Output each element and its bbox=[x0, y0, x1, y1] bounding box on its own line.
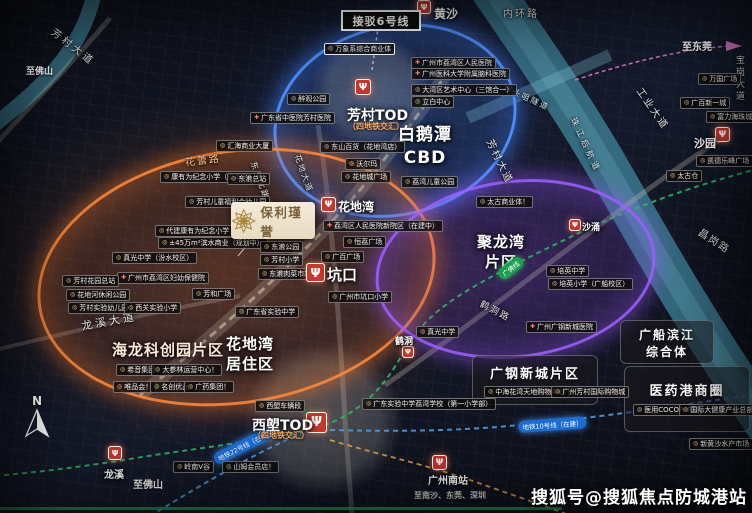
metro-icon: Ψ bbox=[306, 263, 325, 282]
station-longxi: 龙溪 bbox=[104, 466, 124, 481]
poi-dot-icon: ◎ bbox=[550, 268, 555, 275]
poi-dot-icon: ◎ bbox=[162, 240, 167, 247]
hospital-cross-icon: ✚ bbox=[415, 71, 420, 78]
poi-dot-icon: ◎ bbox=[325, 254, 330, 261]
poi-text: 汇海商业大厦 bbox=[227, 142, 269, 150]
metro-icon: Ψ bbox=[402, 346, 414, 358]
map-poi: ◎大湾区艺术中心（三馆合一） bbox=[411, 84, 517, 96]
metro-icon: Ψ bbox=[432, 455, 447, 470]
poi-text: 西关实验小学 bbox=[135, 304, 177, 312]
poi-text: 立白中心 bbox=[422, 98, 450, 106]
yiyaogang-zone-box: 医药港商圈 bbox=[624, 366, 750, 432]
project-logo-card: 保利瑾誉 bbox=[231, 202, 315, 239]
poi-dot-icon: ◎ bbox=[164, 174, 169, 181]
poi-text: 培英中学 bbox=[557, 267, 585, 275]
poi-text: 广州市荔湾区妇幼保健院 bbox=[128, 274, 205, 282]
poi-dot-icon: ◎ bbox=[349, 161, 354, 168]
map-poi: ◎西关实验小学 bbox=[124, 302, 181, 314]
station-huadiwan: 花地湾 bbox=[338, 198, 374, 215]
poi-text: 东漖总站 bbox=[238, 175, 266, 183]
poi-text: 东漖公园 bbox=[271, 243, 299, 251]
poi-dot-icon: ◎ bbox=[117, 384, 122, 391]
station-xilang-sub: （四地铁交汇） bbox=[253, 430, 309, 441]
map-poi: ◎新黄沙水产市场 bbox=[689, 438, 752, 450]
poi-dot-icon: ◎ bbox=[264, 244, 269, 251]
map-poi: ✚广州市荔湾区妇幼保健院 bbox=[117, 272, 209, 284]
poi-text: 广州广钢新城医院 bbox=[537, 323, 593, 331]
poi-dot-icon: ◎ bbox=[291, 96, 296, 103]
hospital-cross-icon: ✚ bbox=[327, 223, 332, 230]
poi-text: ±45万m²滨水商业（规划中） bbox=[169, 239, 263, 247]
poi-text: 广州芳村国际购物城 bbox=[562, 388, 625, 396]
station-huangsha: 黄沙 bbox=[434, 5, 458, 22]
poi-dot-icon: ◎ bbox=[189, 199, 194, 206]
map-poi: ◎富力海珠城 bbox=[706, 111, 752, 123]
line6-label: 接驳6号线 bbox=[353, 13, 410, 29]
station-fangcun-sub: （四地铁交汇） bbox=[348, 121, 404, 132]
map-poi: ◎山姆会员店！ bbox=[222, 461, 279, 473]
poi-text: 唯品会！ bbox=[124, 383, 152, 391]
poi-dot-icon: ◎ bbox=[415, 99, 420, 106]
map-poi: ◎芳村小学 bbox=[260, 254, 303, 266]
map-poi: ◎太古仓 bbox=[666, 170, 702, 182]
to-dongguan-arrow bbox=[726, 41, 742, 51]
poi-dot-icon: ◎ bbox=[120, 367, 125, 374]
poly-flower-logo-icon bbox=[231, 208, 256, 234]
map-poi: ◎芳和广场 bbox=[192, 288, 235, 300]
map-poi: ◎真光中学（汾水校区） bbox=[112, 252, 197, 264]
poi-dot-icon: ◎ bbox=[220, 143, 225, 150]
map-poi: ◎恒荔广场 bbox=[343, 236, 386, 248]
poi-dot-icon: ◎ bbox=[684, 100, 689, 107]
poi-dot-icon: ◎ bbox=[328, 46, 333, 53]
poi-text: 芳和广场 bbox=[203, 290, 231, 298]
map-poi: ✚广州医科大学附属脑科医院 bbox=[411, 68, 510, 80]
poi-text: 恒荔广场 bbox=[354, 238, 382, 246]
metro-icon: Ψ bbox=[715, 127, 730, 142]
zone-hailong: 海龙科创园片区 bbox=[112, 340, 224, 360]
map-poi: ◎立白中心 bbox=[411, 96, 454, 108]
poi-text: 花地城广场 bbox=[352, 173, 387, 181]
direction-nansha: 至南沙、东莞、深圳 bbox=[414, 490, 486, 501]
compass-n-label: N bbox=[24, 394, 50, 408]
map-poi: ◎西塱车辆段 bbox=[255, 400, 305, 412]
poi-dot-icon: ◎ bbox=[670, 173, 675, 180]
poi-dot-icon: ◎ bbox=[159, 228, 164, 235]
poi-dot-icon: ◎ bbox=[188, 384, 193, 391]
poi-text: 东漖肉菜市场 bbox=[269, 270, 311, 278]
poi-text: 广百新一城 bbox=[691, 99, 726, 107]
poi-dot-icon: ◎ bbox=[347, 239, 352, 246]
poi-text: 太古商业体！ bbox=[487, 198, 529, 206]
road-label: 内环路 bbox=[503, 5, 539, 20]
poi-text: 广百广场 bbox=[332, 253, 360, 261]
zone-baietan: 白鹅潭CBD bbox=[398, 124, 452, 170]
map-poi: ◎醉观公园 bbox=[287, 93, 330, 105]
poi-dot-icon: ◎ bbox=[420, 329, 425, 336]
map-poi: ✚荔湾区人民医院新院区（在建中） bbox=[323, 220, 443, 232]
map-poi: ✚广东省中医院芳村医院 bbox=[250, 112, 335, 124]
metro-icon: Ψ bbox=[355, 79, 371, 95]
poi-text: 广州市荔湾区人民医院 bbox=[422, 59, 492, 67]
map-poi: ✚广州广钢新城医院 bbox=[526, 321, 597, 333]
poi-text: 大湾区艺术中心（三馆合一） bbox=[422, 86, 513, 94]
line6-connection-badge: 接驳6号线 bbox=[341, 10, 421, 31]
map-poi: ◎芳村实验幼儿园 bbox=[68, 302, 132, 314]
poi-dot-icon: ◎ bbox=[154, 384, 159, 391]
poi-dot-icon: ◎ bbox=[116, 255, 121, 262]
poi-dot-icon: ◎ bbox=[66, 278, 71, 285]
zone-title: 广钢新城片区 bbox=[473, 356, 597, 382]
map-poi: ◎荔湾儿童公园 bbox=[401, 176, 458, 188]
poi-dot-icon: ◎ bbox=[637, 407, 642, 414]
poi-dot-icon: ◎ bbox=[332, 294, 337, 301]
map-poi: ◎东山百货（花地湾店） bbox=[320, 141, 405, 153]
map-poi: ◎凯德乐峰广场 bbox=[696, 155, 752, 167]
station-shayong: 沙涌 bbox=[582, 220, 600, 233]
map-poi: ◎花地河休闲公园 bbox=[66, 289, 130, 301]
poi-text: 山姆会员店！ bbox=[233, 463, 275, 471]
map-poi: ◎东漖总站 bbox=[227, 173, 270, 185]
map-poi: ◎岭南V谷 bbox=[173, 461, 214, 473]
poi-text: 芳村花园总站 bbox=[73, 277, 115, 285]
map-poi: ◎广百广场 bbox=[321, 251, 364, 263]
poi-text: 富力海珠城 bbox=[717, 113, 752, 121]
poi-text: 岭南V谷 bbox=[184, 463, 210, 471]
poi-text: 荔湾区人民医院新院区（在建中） bbox=[334, 222, 439, 230]
map-poi: ◎广东省实验中学 bbox=[235, 306, 299, 318]
poi-dot-icon: ◎ bbox=[70, 292, 75, 299]
poi-dot-icon: ◎ bbox=[239, 309, 244, 316]
poi-text: 真光中学 bbox=[427, 328, 455, 336]
poi-dot-icon: ◎ bbox=[683, 407, 688, 414]
station-shayuan: 沙园 bbox=[694, 135, 716, 151]
map-poi: ◎国际大健康产业总部！ bbox=[679, 404, 752, 416]
poi-text: 培英小学（广船校区） bbox=[559, 280, 629, 288]
station-hedong: 鹤洞 bbox=[395, 334, 413, 347]
poi-text: 广东省中医院芳村医院 bbox=[261, 114, 331, 122]
poi-text: 花地河休闲公园 bbox=[77, 291, 126, 299]
compass-north: N bbox=[24, 394, 50, 442]
map-poi: ◎万象系综合商业体 bbox=[324, 43, 395, 55]
map-poi: ◎真光中学 bbox=[416, 326, 459, 338]
station-kengkou: 坑口 bbox=[327, 264, 357, 285]
poi-dot-icon: ◎ bbox=[488, 389, 493, 396]
zone-title: 医药港商圈 bbox=[625, 367, 749, 399]
zone-title: 综合体 bbox=[621, 343, 713, 360]
map-poi: ◎芳村花园总站 bbox=[62, 275, 119, 287]
poi-dot-icon: ◎ bbox=[264, 257, 269, 264]
poi-dot-icon: ◎ bbox=[555, 389, 560, 396]
poi-dot-icon: ◎ bbox=[480, 199, 485, 206]
hospital-cross-icon: ✚ bbox=[121, 275, 126, 282]
poi-dot-icon: ◎ bbox=[702, 76, 707, 83]
poi-dot-icon: ◎ bbox=[366, 401, 371, 408]
poi-text: 真光中学（汾水校区） bbox=[123, 254, 193, 262]
north-arrow-icon bbox=[24, 408, 50, 438]
poi-text: 新黄沙水产市场 bbox=[700, 440, 749, 448]
direction-dongguan: 至东莞 bbox=[682, 38, 712, 53]
bottom-green-road bbox=[0, 507, 562, 510]
poi-text: 太古仓 bbox=[677, 172, 698, 180]
poi-dot-icon: ◎ bbox=[552, 281, 557, 288]
poi-text: 国际大健康产业总部！ bbox=[690, 406, 752, 414]
poi-dot-icon: ◎ bbox=[262, 271, 267, 278]
map-poi: ◎广百新一城 bbox=[680, 97, 730, 109]
poi-dot-icon: ◎ bbox=[700, 158, 705, 165]
poi-dot-icon: ◎ bbox=[177, 464, 182, 471]
poi-text: 荔湾儿童公园 bbox=[412, 178, 454, 186]
poi-dot-icon: ◎ bbox=[155, 367, 160, 374]
map-poi: ◎广州市坑口小学 bbox=[328, 291, 392, 303]
map-canvas: 内环路 芳村大道 芳村大道 花蕾路 东漖北路 花地大道 龙溪大道 工业大道 宝岗… bbox=[0, 0, 752, 513]
zone-huadiwan-residential: 花地湾居住区 bbox=[226, 334, 274, 375]
map-poi: ◎培英中学 bbox=[546, 265, 589, 277]
poi-text: 广东实验中学荔湾学校（第一小学部） bbox=[373, 400, 492, 408]
poi-text: 醉观公园 bbox=[298, 95, 326, 103]
map-poi: ◎培英小学（广船校区） bbox=[548, 278, 633, 290]
hospital-cross-icon: ✚ bbox=[415, 60, 420, 67]
map-poi: ◎太古商业体！ bbox=[476, 196, 533, 208]
hospital-cross-icon: ✚ bbox=[530, 324, 535, 331]
poi-text: 沃尔玛 bbox=[356, 160, 377, 168]
poi-dot-icon: ◎ bbox=[415, 87, 420, 94]
hospital-cross-icon: ✚ bbox=[254, 115, 259, 122]
metro-icon: Ψ bbox=[108, 446, 122, 460]
poi-text: 广东省实验中学 bbox=[246, 308, 295, 316]
poi-text: 广药集团！ bbox=[195, 383, 230, 391]
project-name: 保利瑾誉 bbox=[260, 202, 315, 240]
map-poi: ◎沃尔玛 bbox=[345, 158, 381, 170]
poi-dot-icon: ◎ bbox=[128, 305, 133, 312]
poi-text: 广州市坑口小学 bbox=[339, 293, 388, 301]
map-poi: ◎大参林运营中心！ bbox=[151, 364, 222, 376]
poi-text: 芳村小学 bbox=[271, 256, 299, 264]
map-poi: ◎万国广场 bbox=[698, 73, 741, 85]
poi-text: 大参林运营中心！ bbox=[162, 366, 218, 374]
direction-foshan-top: 至佛山 bbox=[26, 64, 53, 77]
poi-dot-icon: ◎ bbox=[693, 441, 698, 448]
poi-dot-icon: ◎ bbox=[196, 291, 201, 298]
poi-dot-icon: ◎ bbox=[345, 174, 350, 181]
poi-dot-icon: ◎ bbox=[259, 403, 264, 410]
poi-dot-icon: ◎ bbox=[231, 176, 236, 183]
poi-text: 广州医科大学附属脑科医院 bbox=[422, 70, 506, 78]
poi-dot-icon: ◎ bbox=[226, 464, 231, 471]
metro-icon: Ψ bbox=[321, 197, 336, 212]
metro-icon: Ψ bbox=[569, 219, 581, 231]
map-poi: ◎汇海商业大厦 bbox=[216, 140, 273, 152]
poi-text: 西塱车辆段 bbox=[266, 402, 301, 410]
map-poi: ◎广东实验中学荔湾学校（第一小学部） bbox=[362, 398, 496, 410]
poi-text: 凯德乐峰广场 bbox=[707, 157, 749, 165]
poi-dot-icon: ◎ bbox=[324, 144, 329, 151]
poi-dot-icon: ◎ bbox=[710, 114, 715, 121]
poi-dot-icon: ◎ bbox=[405, 179, 410, 186]
zone-title: 广船滨江 bbox=[621, 321, 713, 343]
poi-text: 东山百货（花地湾店） bbox=[331, 143, 401, 151]
station-gznan: 广州南站 bbox=[428, 472, 468, 487]
map-poi: ◎花地城广场 bbox=[341, 171, 391, 183]
map-poi: ◎东漖公园 bbox=[260, 241, 303, 253]
watermark: 搜狐号@搜狐焦点防城港站 bbox=[531, 483, 747, 508]
poi-text: 万象系综合商业体 bbox=[335, 45, 391, 53]
poi-dot-icon: ◎ bbox=[72, 305, 77, 312]
map-poi: ◎广药集团！ bbox=[184, 381, 234, 393]
poi-text: 万国广场 bbox=[709, 75, 737, 83]
map-poi: ◎广州芳村国际购物城 bbox=[551, 386, 629, 398]
direction-foshan-bottom: 至佛山 bbox=[133, 476, 163, 491]
poi-text: 芳村实验幼儿园 bbox=[79, 304, 128, 312]
guangchuan-zone-box: 广船滨江 综合体 bbox=[620, 320, 714, 364]
